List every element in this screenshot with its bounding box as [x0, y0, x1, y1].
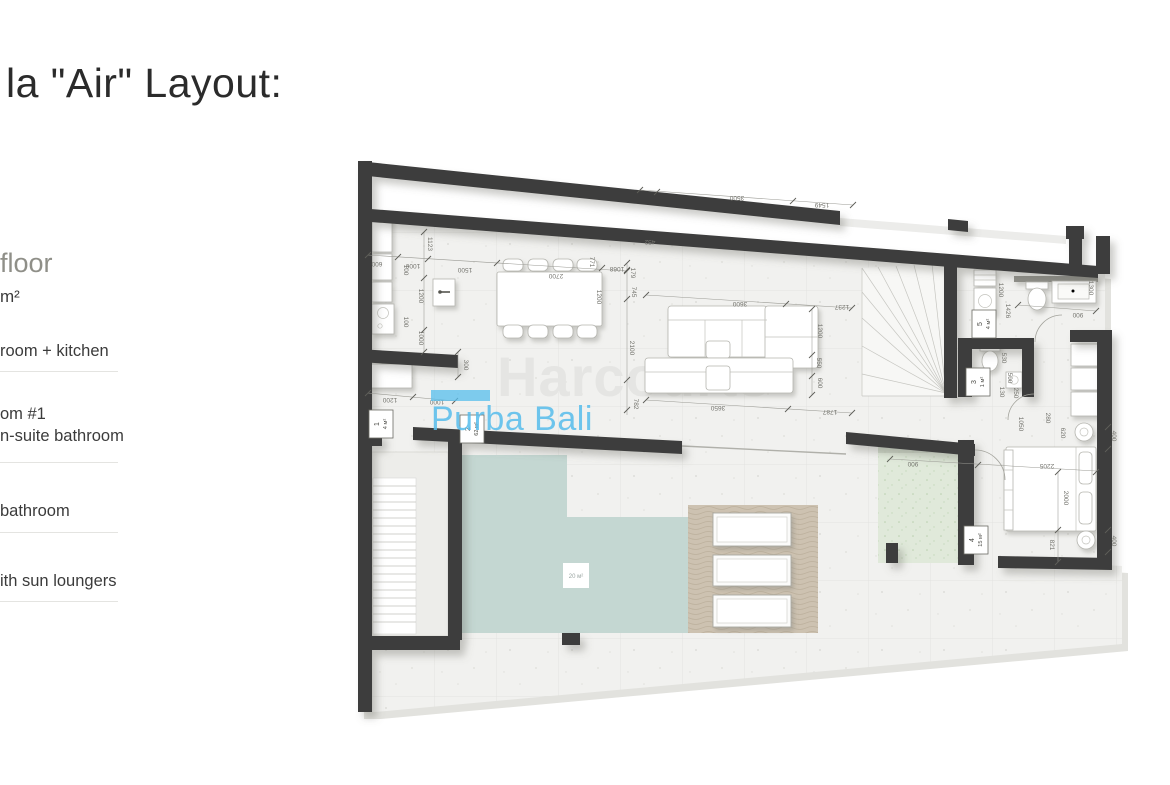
dimension-label: 600 — [371, 260, 382, 267]
dimension-label: 452 — [644, 238, 655, 245]
wall — [886, 543, 898, 563]
dimension-label: 1787 — [822, 408, 837, 415]
dimension-label: 100 — [402, 317, 409, 328]
outdoor-staircase — [372, 452, 448, 636]
bed — [1004, 447, 1096, 531]
sidebar-item-label: om #1 — [0, 403, 124, 425]
dimension-label: 600 — [816, 378, 823, 389]
dimension-label: 3600 — [732, 300, 747, 307]
sidebar-item-label: n-suite bathroom — [0, 425, 124, 447]
kitchen-sink — [372, 304, 394, 334]
divider — [0, 532, 118, 533]
dimension-label: 130 — [998, 387, 1005, 398]
sidebar-item-label: room + kitchen — [0, 342, 109, 360]
sidebar-item-living-kitchen: room + kitchen — [0, 340, 109, 362]
dimension-label: 530 — [1000, 353, 1007, 364]
dimension-label: 745 — [630, 287, 637, 298]
svg-text:4: 4 — [969, 538, 976, 542]
dimension-label: 2100 — [628, 341, 635, 356]
sidebar-floor-heading: floor — [0, 248, 53, 279]
svg-text:15 м²: 15 м² — [978, 533, 984, 547]
svg-text:4 м²: 4 м² — [986, 319, 992, 330]
dimension-label: 782 — [632, 399, 639, 410]
dimension-label: 900 — [907, 460, 918, 467]
sidebar-item-bathroom: bathroom — [0, 500, 70, 522]
dimension-label: 550 — [815, 358, 822, 369]
sidebar-item-bedroom1: om #1 n-suite bathroom — [0, 403, 124, 447]
room-label: 54 м² — [972, 310, 996, 338]
dimension-label: 400 — [1110, 536, 1117, 547]
dining-table — [497, 272, 602, 326]
sidebar-item-label: bathroom — [0, 502, 70, 520]
wall — [998, 556, 1112, 570]
page-title: la "Air" Layout: — [6, 60, 282, 107]
wall — [1097, 330, 1112, 566]
wall — [944, 258, 957, 398]
svg-text:Purba Bali: Purba Bali — [431, 400, 593, 438]
dimension-label: 1500 — [457, 266, 472, 273]
sofa — [645, 306, 818, 393]
room-label: 14 м² — [369, 410, 393, 438]
wall — [448, 440, 462, 640]
sidebar-item-pool-loungers: ith sun loungers — [0, 570, 117, 592]
kitchen-counter — [372, 216, 394, 334]
coffee-table — [706, 341, 730, 358]
dimension-label: 1300 — [1087, 281, 1094, 296]
room-label: 31 м² — [966, 368, 990, 396]
coffee-table — [706, 366, 730, 390]
wall — [368, 636, 460, 650]
dimension-label: 1237 — [834, 303, 849, 310]
svg-text:3: 3 — [971, 380, 978, 384]
room-label: 415 м² — [964, 526, 988, 554]
wall — [948, 219, 968, 232]
dimension-label: 400 — [1110, 431, 1117, 442]
dimension-label: 1200 — [997, 283, 1004, 298]
washing-machine — [974, 270, 996, 314]
dimension-label: 1200 — [595, 290, 602, 305]
wall — [1069, 237, 1082, 269]
svg-text:1 м²: 1 м² — [980, 377, 986, 388]
room1-counter — [368, 364, 412, 388]
wall — [562, 633, 580, 645]
dimension-label: 3650 — [710, 404, 725, 411]
dimension-label: 900 — [1072, 311, 1083, 318]
divider — [0, 371, 118, 372]
sidebar-area-value: m² — [0, 287, 20, 307]
dimension-label: 100 — [402, 265, 409, 276]
divider — [0, 601, 118, 602]
dimension-label: 1068 — [609, 265, 624, 272]
bedside-table — [1077, 531, 1095, 549]
dimension-label: 1000 — [417, 331, 424, 346]
dimension-label: 179 — [629, 268, 636, 279]
dimension-label: 2700 — [548, 272, 563, 279]
dimension-label: 280 — [1044, 413, 1051, 424]
svg-text:1: 1 — [374, 422, 381, 426]
floor-plan: Harcourts — [355, 160, 1135, 735]
dimension-label: 771 — [588, 257, 595, 268]
dimension-label: 1123 — [426, 237, 433, 251]
dimension-label: 1549 — [814, 201, 829, 208]
divider — [0, 462, 118, 463]
pool-deck — [688, 505, 818, 633]
kitchen-island — [433, 279, 455, 306]
svg-text:4 м²: 4 м² — [383, 419, 389, 430]
dimension-label: 2000 — [1062, 491, 1069, 506]
dimension-label: 300 — [462, 360, 469, 371]
pool-area-label: 20 м² — [563, 563, 589, 588]
dimension-label: 620 — [1059, 428, 1066, 439]
svg-text:5: 5 — [977, 322, 984, 326]
bedside-table — [1075, 423, 1093, 441]
dimension-label: 2205 — [1039, 462, 1054, 469]
pillow — [1079, 452, 1092, 484]
staircase — [862, 263, 950, 396]
dimension-label: 821 — [1048, 540, 1055, 551]
dimension-label: 1200 — [417, 289, 424, 304]
dimension-label: 1200 — [382, 396, 397, 403]
dimension-label: 500 — [1006, 373, 1013, 384]
dimension-label: 250 — [1012, 388, 1019, 399]
closet — [1071, 344, 1099, 416]
svg-text:20 м²: 20 м² — [569, 574, 583, 580]
dimension-label: 3500 — [729, 194, 744, 201]
wall — [1070, 330, 1112, 342]
dimension-label: 1200 — [816, 324, 823, 339]
pillow — [1079, 492, 1092, 524]
wall — [1096, 236, 1110, 274]
dimension-label: 1050 — [1017, 417, 1024, 432]
wall — [1022, 349, 1034, 397]
sidebar-item-label: ith sun loungers — [0, 572, 117, 590]
dimension-label: 1426 — [1004, 304, 1011, 319]
